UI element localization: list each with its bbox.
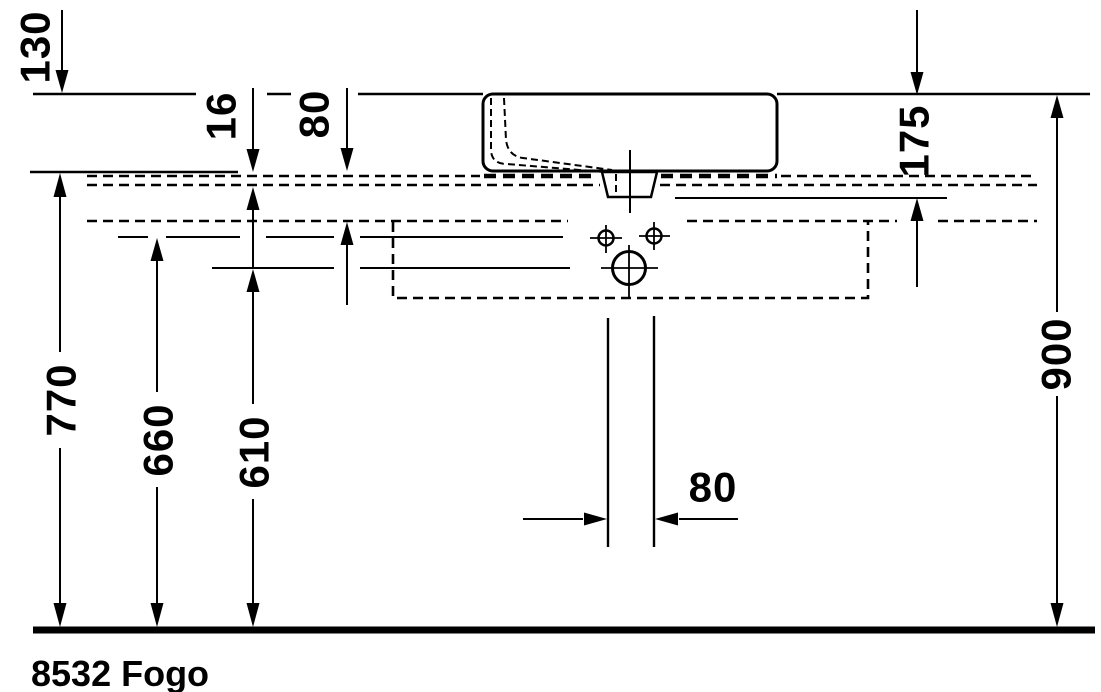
dim-80h-arrow-left bbox=[655, 513, 678, 526]
dim-770-arrow-up bbox=[54, 173, 67, 197]
dim-610-arrow-down bbox=[247, 603, 260, 627]
dim-770-label: 770 bbox=[38, 363, 85, 436]
dim-80h-label: 80 bbox=[689, 464, 738, 511]
dim-16-arrow-down bbox=[247, 149, 260, 172]
dim-175-arrow-up bbox=[911, 198, 924, 221]
dim-660-arrow-down bbox=[151, 603, 164, 627]
dim-80h-arrow-right bbox=[584, 513, 607, 526]
faucet-hole-right-crosshair bbox=[639, 222, 670, 250]
dim-900-label: 900 bbox=[1033, 317, 1080, 390]
dim-16-label: 16 bbox=[198, 92, 245, 141]
drain-hole-crosshair bbox=[601, 245, 658, 299]
dim-770-arrow-down bbox=[54, 603, 67, 627]
dim-175-arrow-down bbox=[911, 72, 924, 95]
dim-660-arrow-up bbox=[151, 238, 164, 261]
dim-900-arrow-up bbox=[1051, 95, 1064, 118]
technical-drawing-canvas: 130 16 80 175 770 660 610 900 80 8532 Fo… bbox=[0, 0, 1101, 692]
dim-16-arrow-up bbox=[247, 187, 260, 210]
dim-610-arrow-up bbox=[247, 269, 260, 292]
dim-900-arrow-down bbox=[1051, 603, 1064, 627]
dim-130-label: 130 bbox=[12, 10, 59, 83]
dim-80v-arrow-up bbox=[341, 222, 354, 245]
dim-175-label: 175 bbox=[891, 104, 938, 177]
drawing-svg: 130 16 80 175 770 660 610 900 80 8532 Fo… bbox=[0, 0, 1101, 692]
dim-660-label: 660 bbox=[135, 403, 182, 476]
dim-80v-label: 80 bbox=[291, 90, 338, 139]
dim-80v-arrow-down bbox=[341, 148, 354, 171]
product-label: 8532 Fogo bbox=[31, 653, 209, 692]
faucet-hole-left-crosshair bbox=[590, 225, 622, 253]
vanity-unit-dashed-outline bbox=[393, 222, 868, 298]
dim-610-label: 610 bbox=[231, 415, 278, 488]
